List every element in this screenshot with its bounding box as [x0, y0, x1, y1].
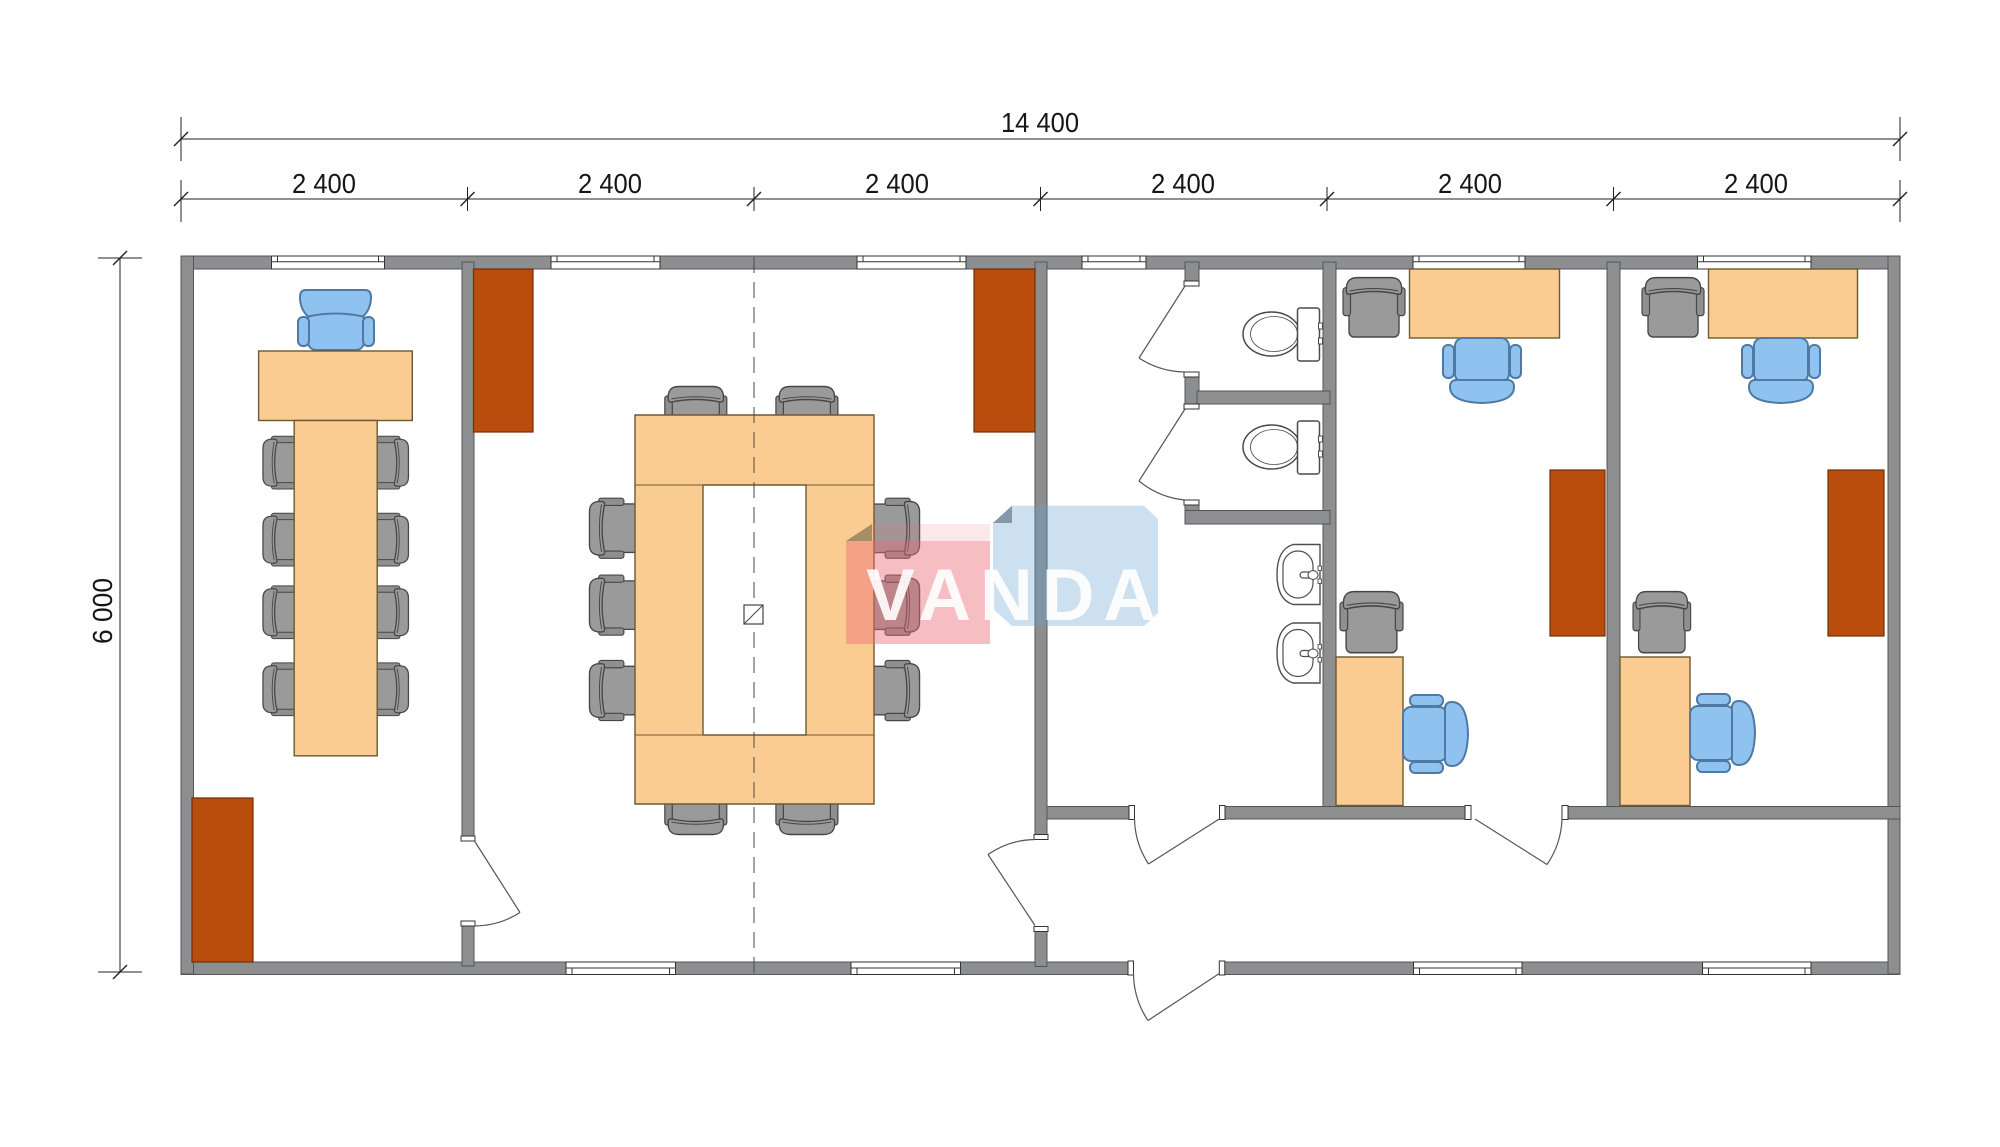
svg-text:14 400: 14 400	[1001, 107, 1079, 138]
svg-text:2 400: 2 400	[578, 168, 642, 199]
svg-text:2 400: 2 400	[1438, 168, 1502, 199]
svg-text:2 400: 2 400	[865, 168, 929, 199]
svg-text:2 400: 2 400	[1151, 168, 1215, 199]
svg-text:2 400: 2 400	[1724, 168, 1788, 199]
svg-text:6 000: 6 000	[87, 578, 118, 644]
svg-text:2 400: 2 400	[292, 168, 356, 199]
svg-text:VANDA: VANDA	[866, 555, 1165, 636]
